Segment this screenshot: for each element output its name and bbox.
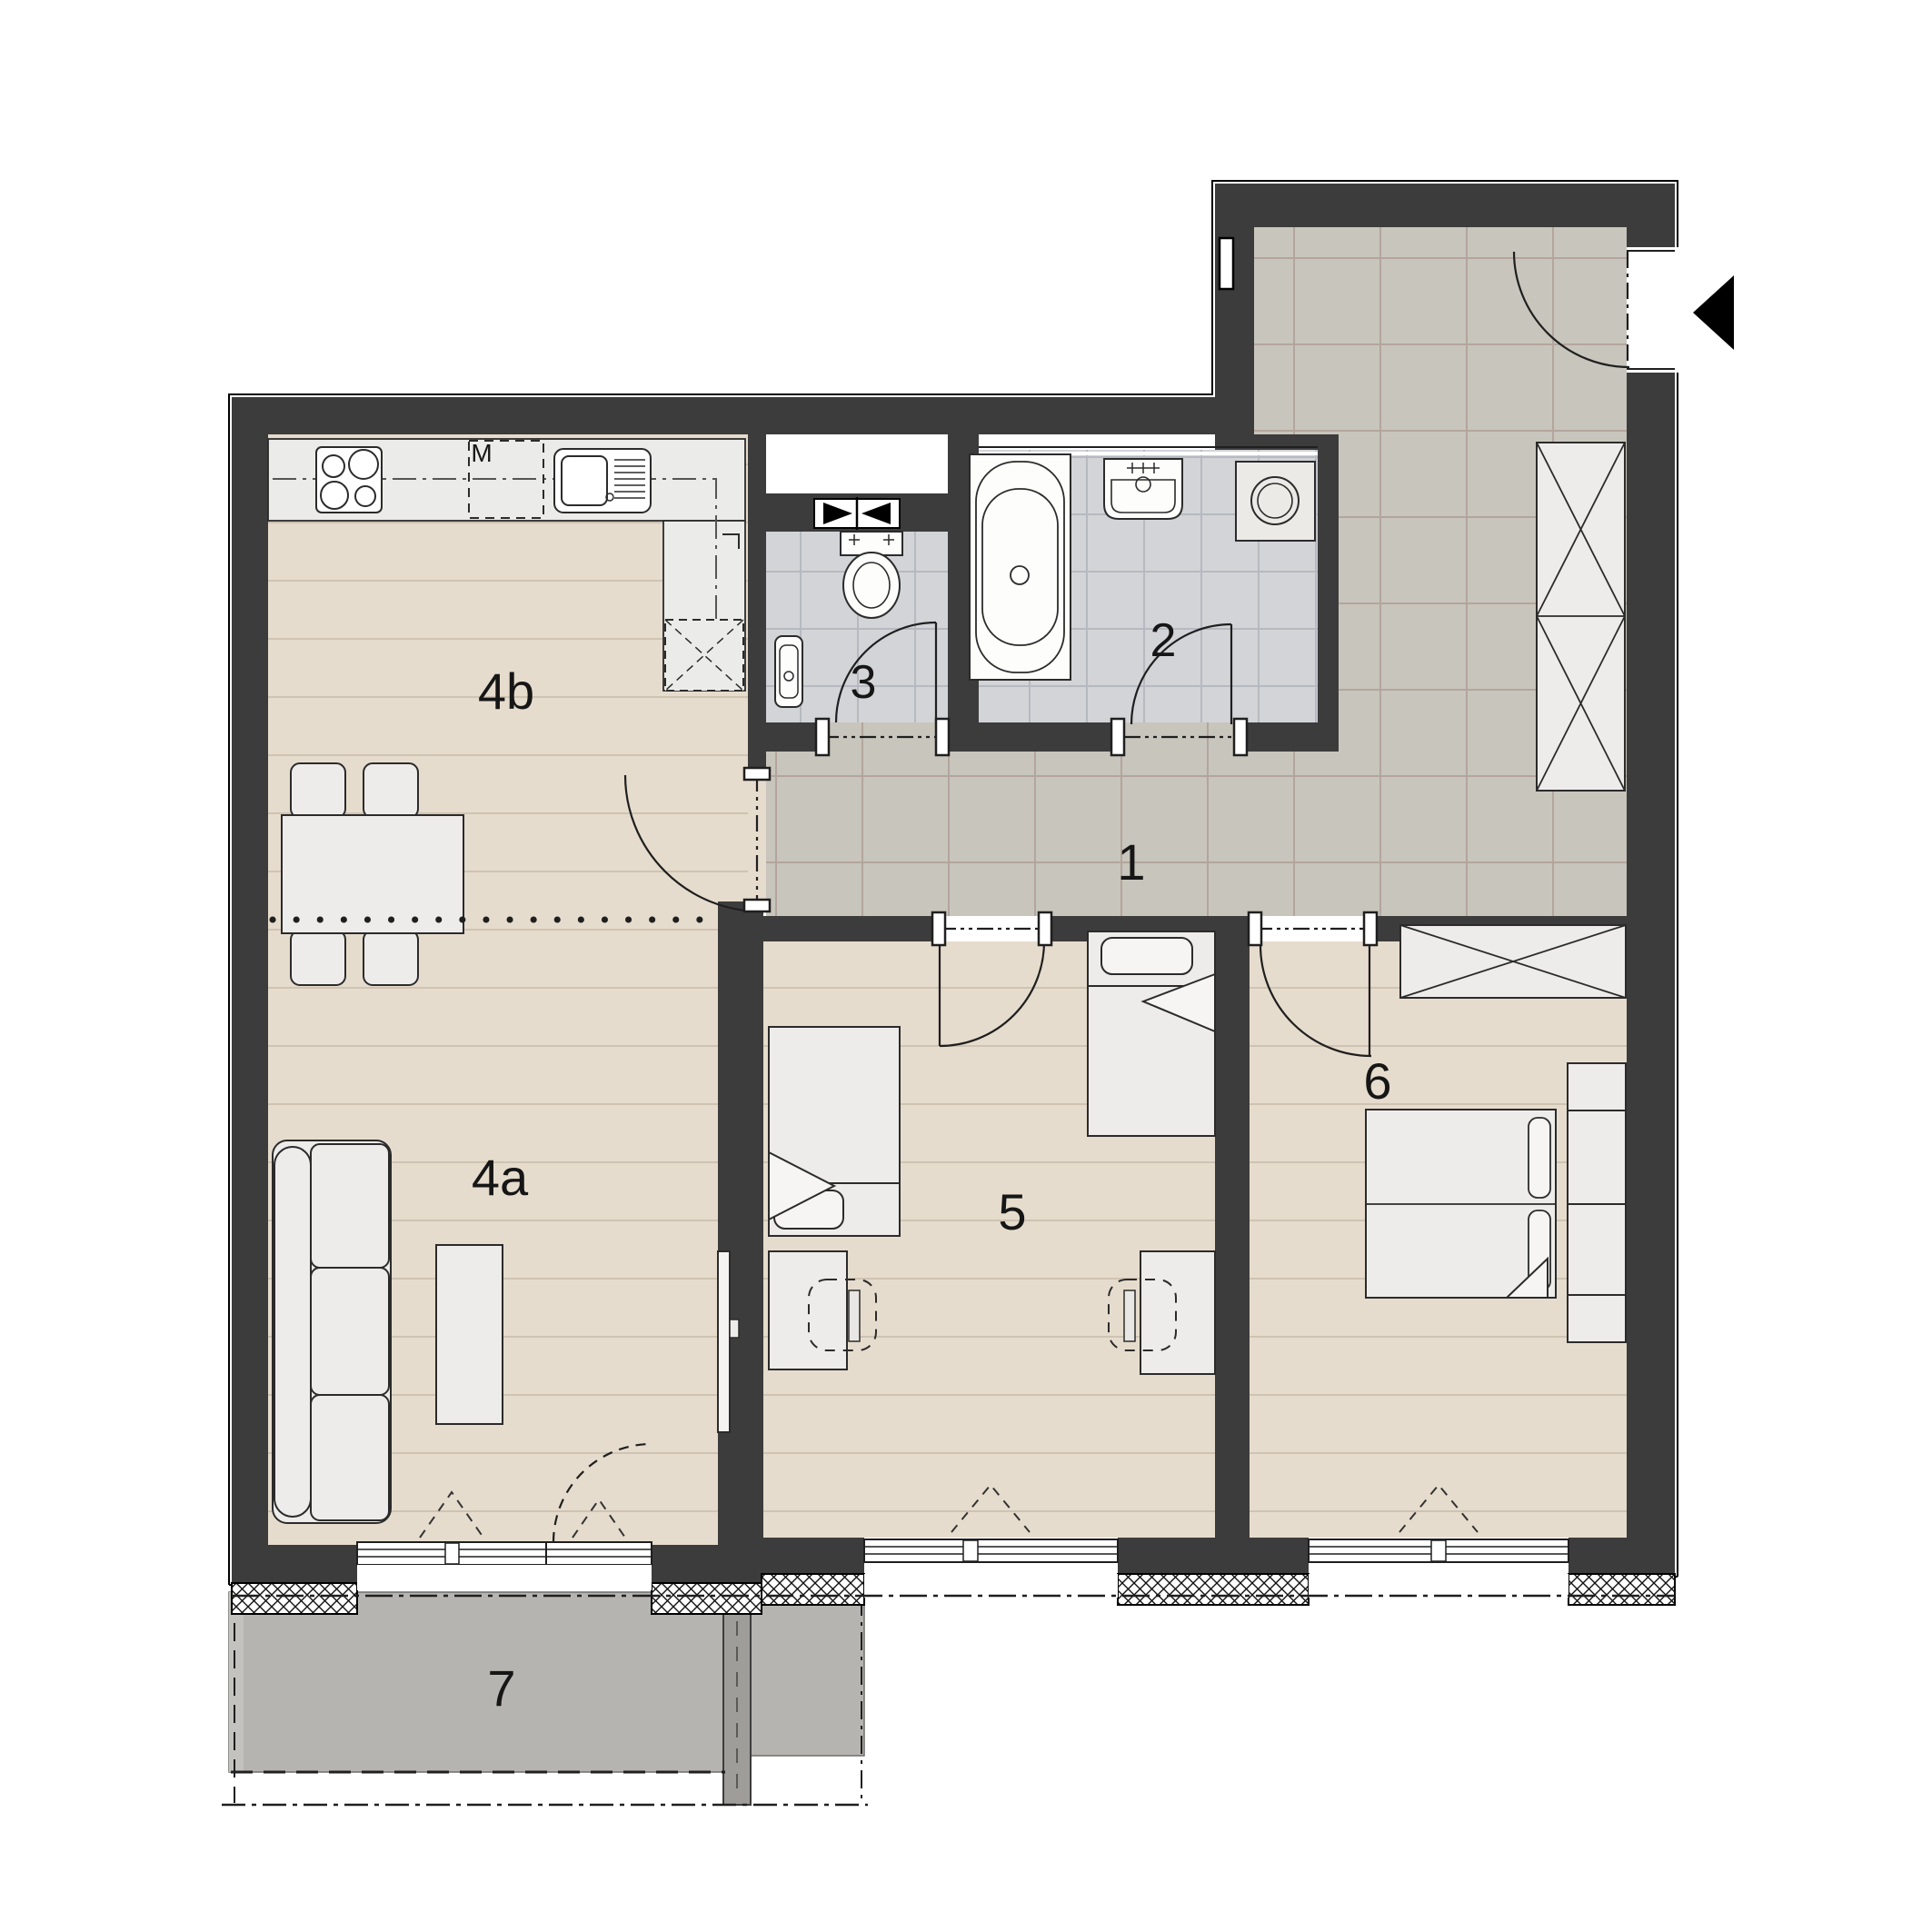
kitchen-sink (554, 449, 651, 513)
bed-single-left (769, 1027, 900, 1236)
door-jamb (1111, 719, 1124, 755)
wall-bottom-bed1-left-pier (762, 1538, 864, 1574)
tv-bracket (730, 1320, 739, 1338)
coffee-table (436, 1245, 503, 1424)
window-mullion (1431, 1540, 1446, 1561)
insulation-band (1118, 1574, 1309, 1605)
wall-bed1-bed2 (1215, 941, 1250, 1538)
dining-chair (291, 763, 345, 818)
neighbor-balcony-strip (751, 1592, 864, 1756)
wall-wcbath-bottom-1 (748, 722, 822, 752)
installation-shaft (766, 434, 948, 493)
wall-corridor-bottom-1 (762, 916, 940, 941)
wall-bottom-center-pier (1118, 1538, 1309, 1574)
nightstand (1568, 1063, 1626, 1110)
insulation-band (1569, 1574, 1675, 1605)
vent-symbol (814, 497, 900, 530)
label-bathroom: 2 (1150, 614, 1177, 667)
door-jamb (1249, 912, 1261, 945)
wall-right-above-door (1627, 227, 1675, 249)
floor-plan-drawing: 1 2 3 4a 4b 5 6 7 M (0, 0, 1932, 1932)
chair-backrest (849, 1290, 860, 1341)
wall-living-bed1 (718, 901, 763, 1545)
balcony-floor (229, 1592, 727, 1772)
wall-bottom-living-left-pier (232, 1545, 357, 1583)
door-jamb (936, 719, 949, 755)
bed-single-right (1088, 931, 1215, 1136)
dining-chair (291, 931, 345, 985)
dining-table (282, 815, 463, 933)
washing-machine-body (1236, 462, 1315, 541)
wardrobe-hall (1537, 443, 1625, 791)
door-jamb (1234, 719, 1247, 755)
bedside-unit (1568, 1110, 1626, 1204)
wall-top-main (232, 397, 1254, 434)
wc-washbasin (775, 636, 802, 707)
door-jamb (744, 768, 770, 780)
entrance-door-opening (1627, 247, 1678, 373)
pillow (1529, 1118, 1550, 1198)
tv (718, 1251, 730, 1432)
toilet (841, 532, 902, 618)
sofa-cushion (311, 1144, 389, 1268)
sink-basin (562, 456, 607, 505)
bathtub (970, 454, 1071, 680)
insulation-band (762, 1574, 864, 1605)
window-sill (864, 1574, 1118, 1598)
window-mullion (963, 1540, 978, 1561)
label-wc: 3 (851, 656, 877, 709)
label-living-room: 4a (472, 1149, 529, 1206)
label-kitchen-dining: 4b (478, 662, 534, 720)
wall-wcbath-bottom-2 (942, 722, 1124, 752)
washing-machine (1236, 462, 1315, 541)
wall-left (232, 397, 268, 1583)
label-bedroom-2: 6 (1363, 1052, 1391, 1110)
wardrobe-bedroom-2 (1400, 925, 1626, 998)
bedroom-1-window (864, 1539, 1118, 1562)
pillow (1101, 938, 1192, 974)
door-jamb (1364, 912, 1377, 945)
insulation-band (652, 1583, 762, 1614)
balcony-door-panel (546, 1542, 652, 1565)
label-appliance-m: M (471, 439, 492, 467)
wall-bottom-right-pier (1569, 1538, 1675, 1574)
wall-wcbath-bottom-3 (1240, 722, 1339, 752)
washbasin-faucet-marks (1127, 463, 1160, 473)
door-jamb (816, 719, 829, 755)
wall-right (1627, 373, 1675, 1574)
label-balcony: 7 (487, 1659, 515, 1717)
wall-bath-right (1318, 434, 1339, 752)
sofa-cushion (311, 1395, 389, 1520)
balcony-edge-strip (229, 1592, 244, 1772)
door-jamb (744, 900, 770, 911)
wall-entry-top (1215, 184, 1675, 227)
wall-bottom-living-right-pier (652, 1545, 762, 1583)
insulation-band (232, 1583, 357, 1614)
floor-plan-canvas: 1 2 3 4a 4b 5 6 7 M (0, 0, 1932, 1932)
window-sill (357, 1565, 652, 1590)
double-bed (1366, 1110, 1556, 1298)
bedroom-2-furniture (1366, 925, 1626, 1342)
nightstand (1568, 1295, 1626, 1342)
intercom-panel (1220, 238, 1233, 289)
door-jamb (932, 912, 945, 945)
window-mullion (445, 1543, 459, 1564)
washbasin (1104, 459, 1182, 519)
desk (1140, 1251, 1215, 1374)
window-sill (1309, 1574, 1569, 1598)
entrance-hall-floor-band (766, 752, 1627, 916)
dining-chair (363, 763, 418, 818)
dining-chair (363, 931, 418, 985)
entrance-hall-floor-upper (1254, 227, 1627, 434)
bedside-unit (1568, 1204, 1626, 1295)
door-jamb (1039, 912, 1051, 945)
sofa-backrest (274, 1147, 311, 1517)
sink-drainboard (614, 460, 645, 498)
fridge (665, 620, 743, 691)
chair-backrest (1124, 1290, 1135, 1341)
sofa-cushion (311, 1268, 389, 1395)
label-entrance-hall: 1 (1117, 833, 1145, 891)
entrance-arrow (1693, 275, 1734, 350)
label-bedroom-1: 5 (998, 1183, 1026, 1240)
